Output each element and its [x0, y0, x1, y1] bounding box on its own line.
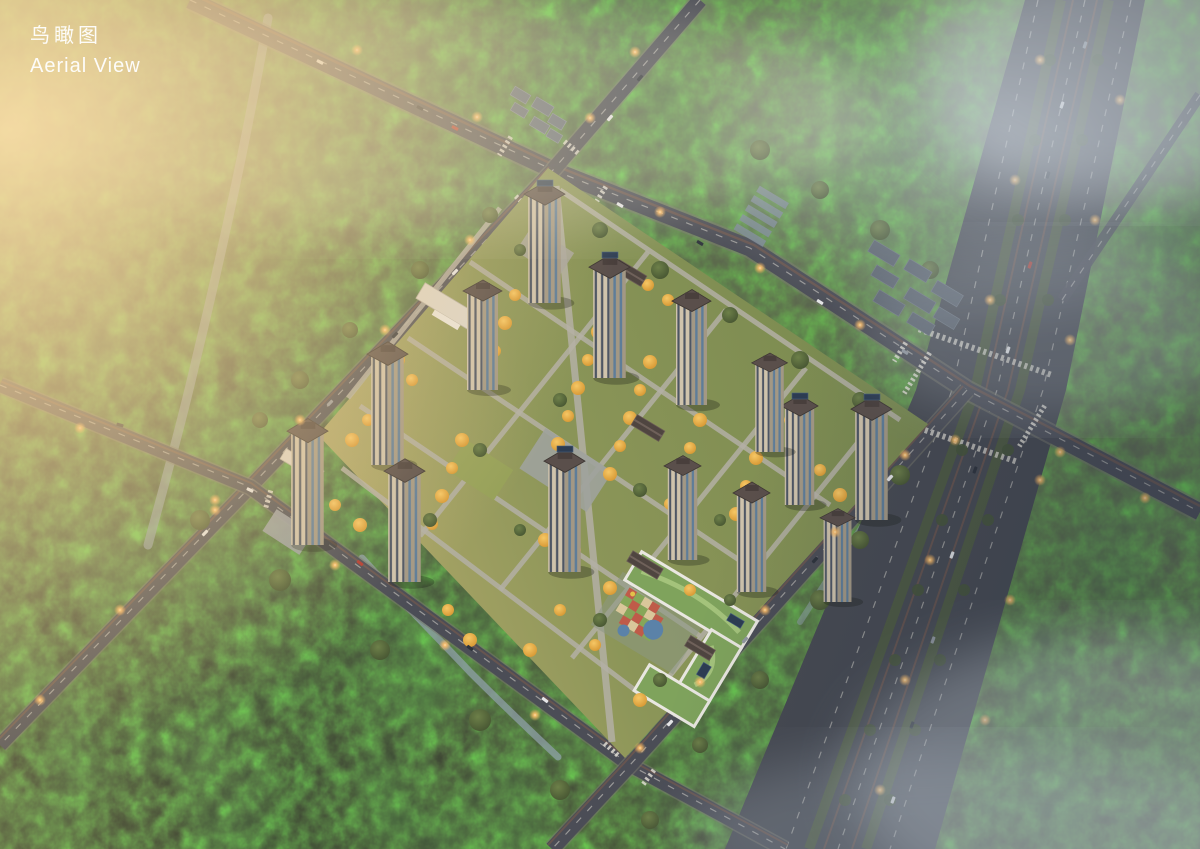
atmosphere: [0, 0, 1200, 849]
view-title-cn: 鸟瞰图: [30, 24, 141, 49]
view-title-en: Aerial View: [30, 54, 141, 79]
view-title: 鸟瞰图 Aerial View: [30, 24, 141, 79]
scene-svg: [0, 0, 1200, 849]
aerial-view-rendering: 鸟瞰图 Aerial View: [0, 0, 1200, 849]
